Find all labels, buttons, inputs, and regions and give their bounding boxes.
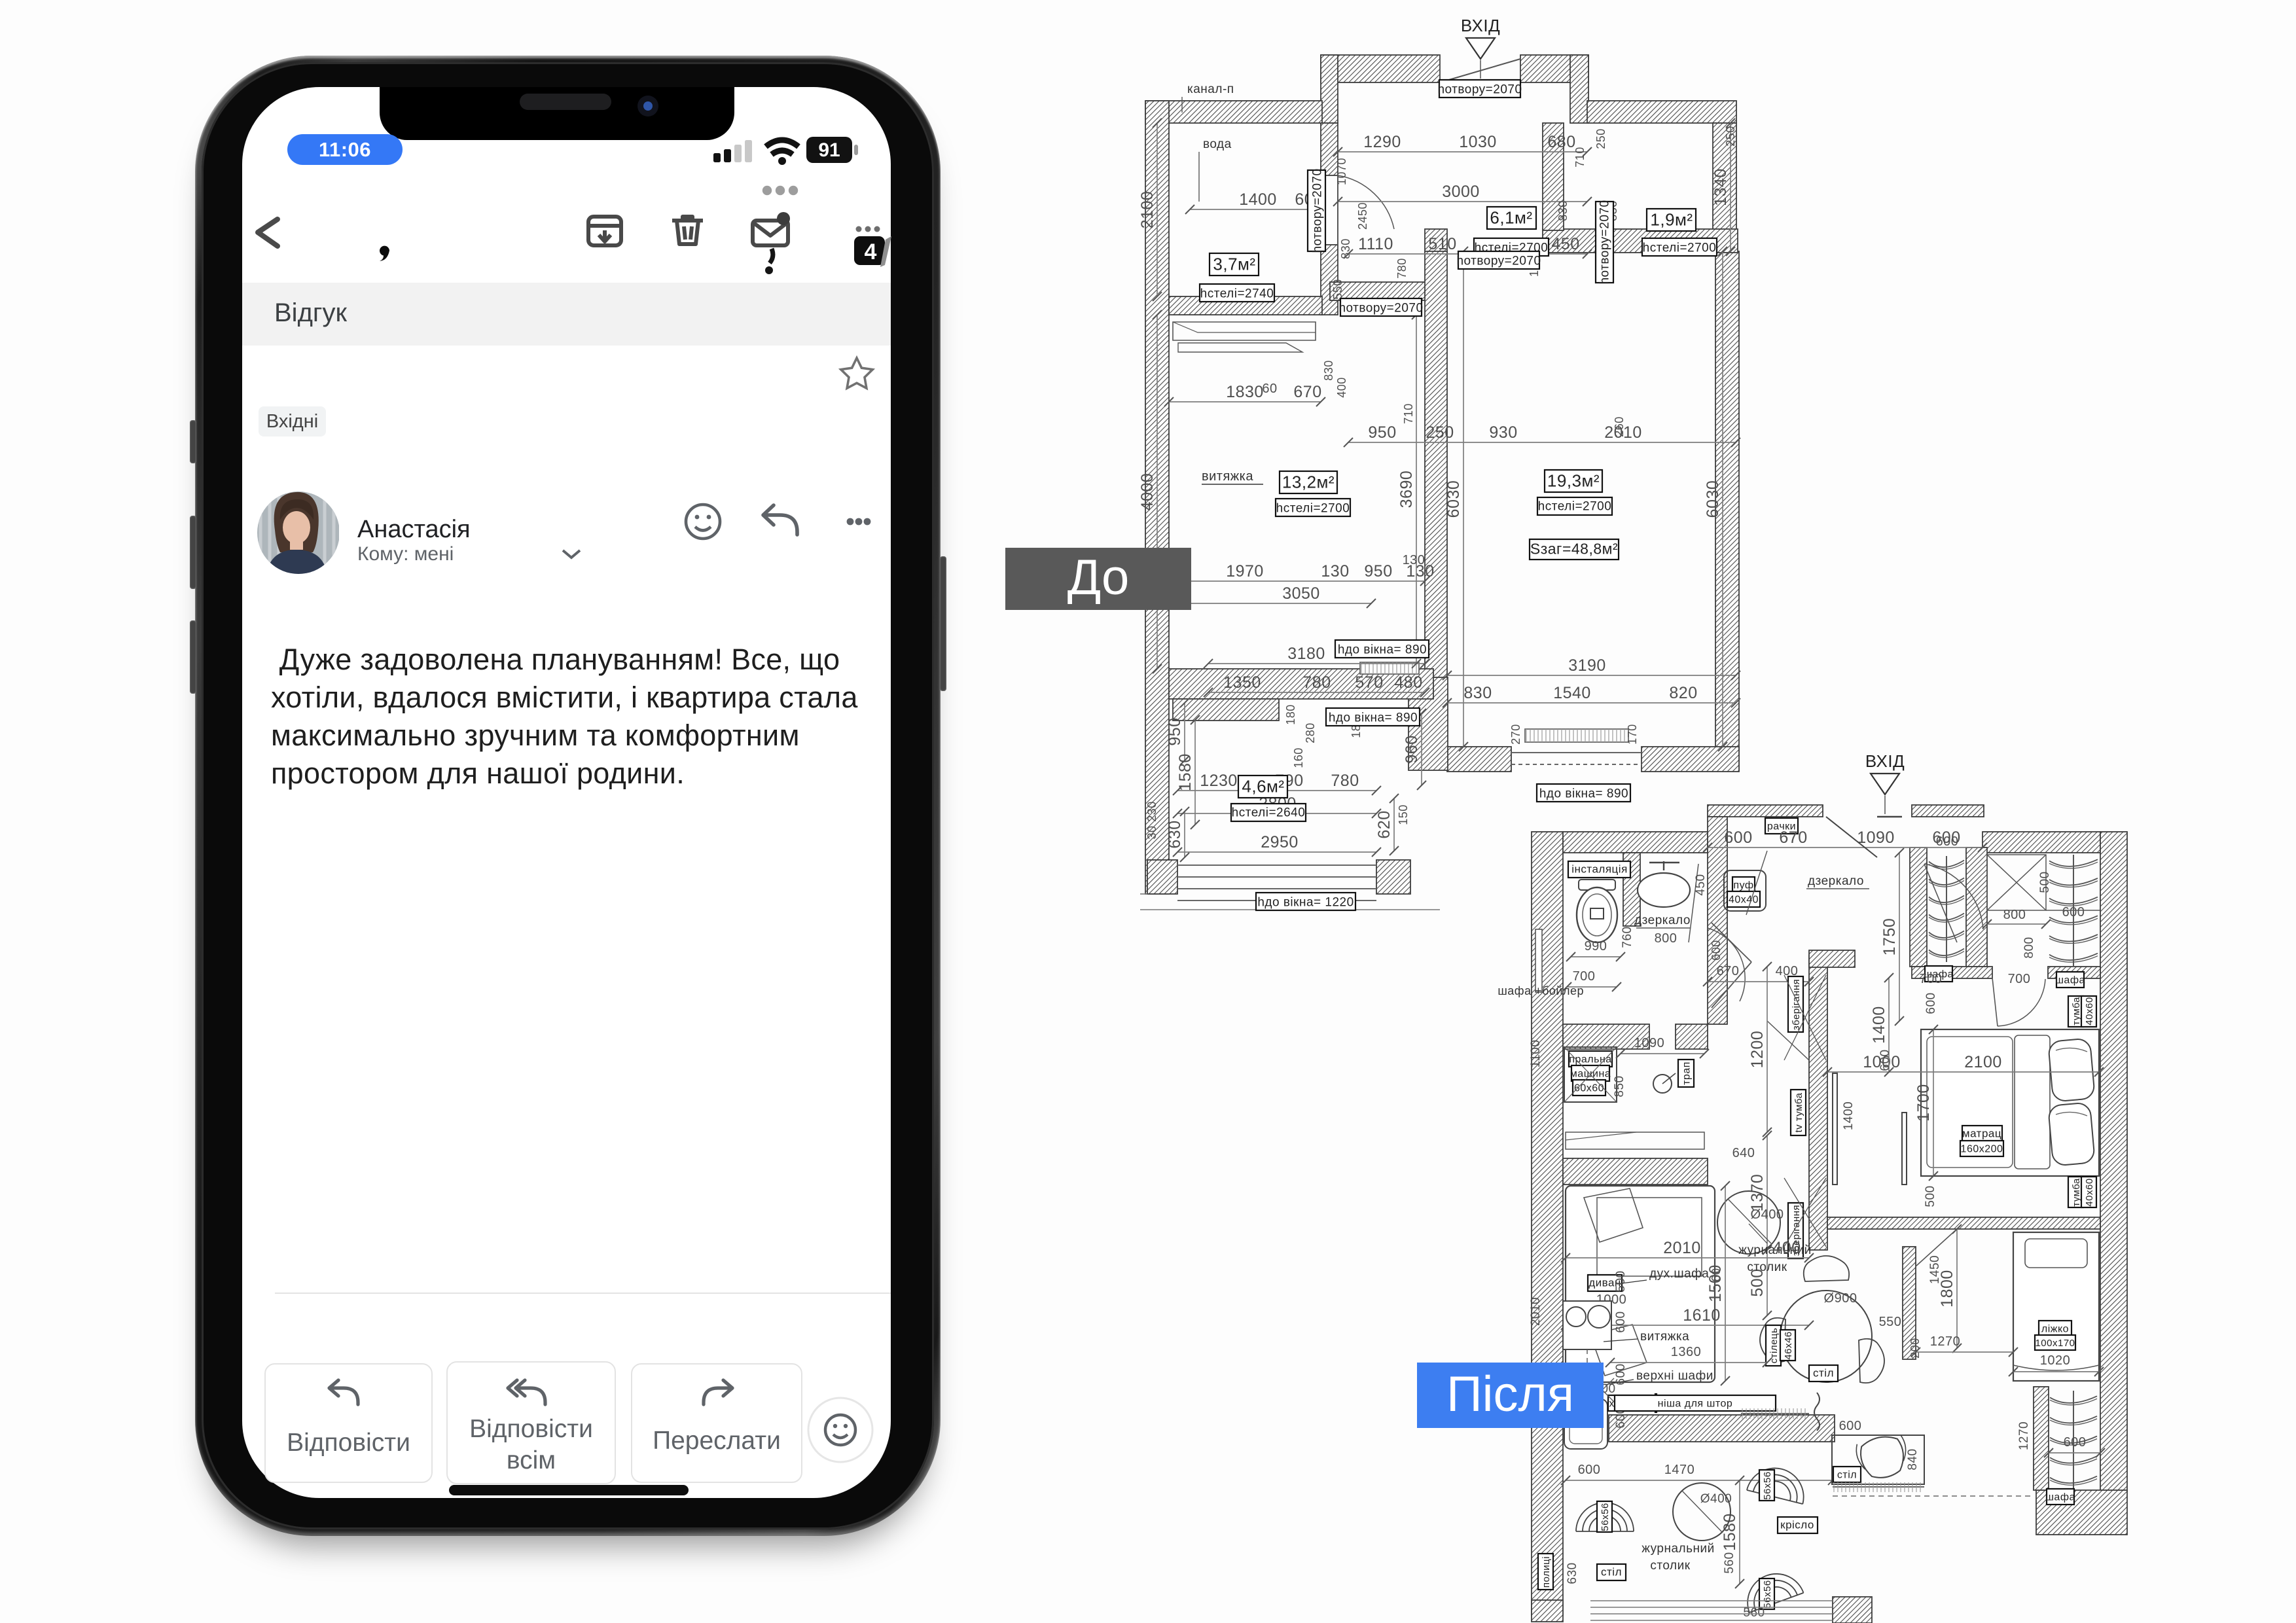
- svg-text:91: 91: [818, 139, 840, 161]
- svg-text:4: 4: [865, 240, 877, 264]
